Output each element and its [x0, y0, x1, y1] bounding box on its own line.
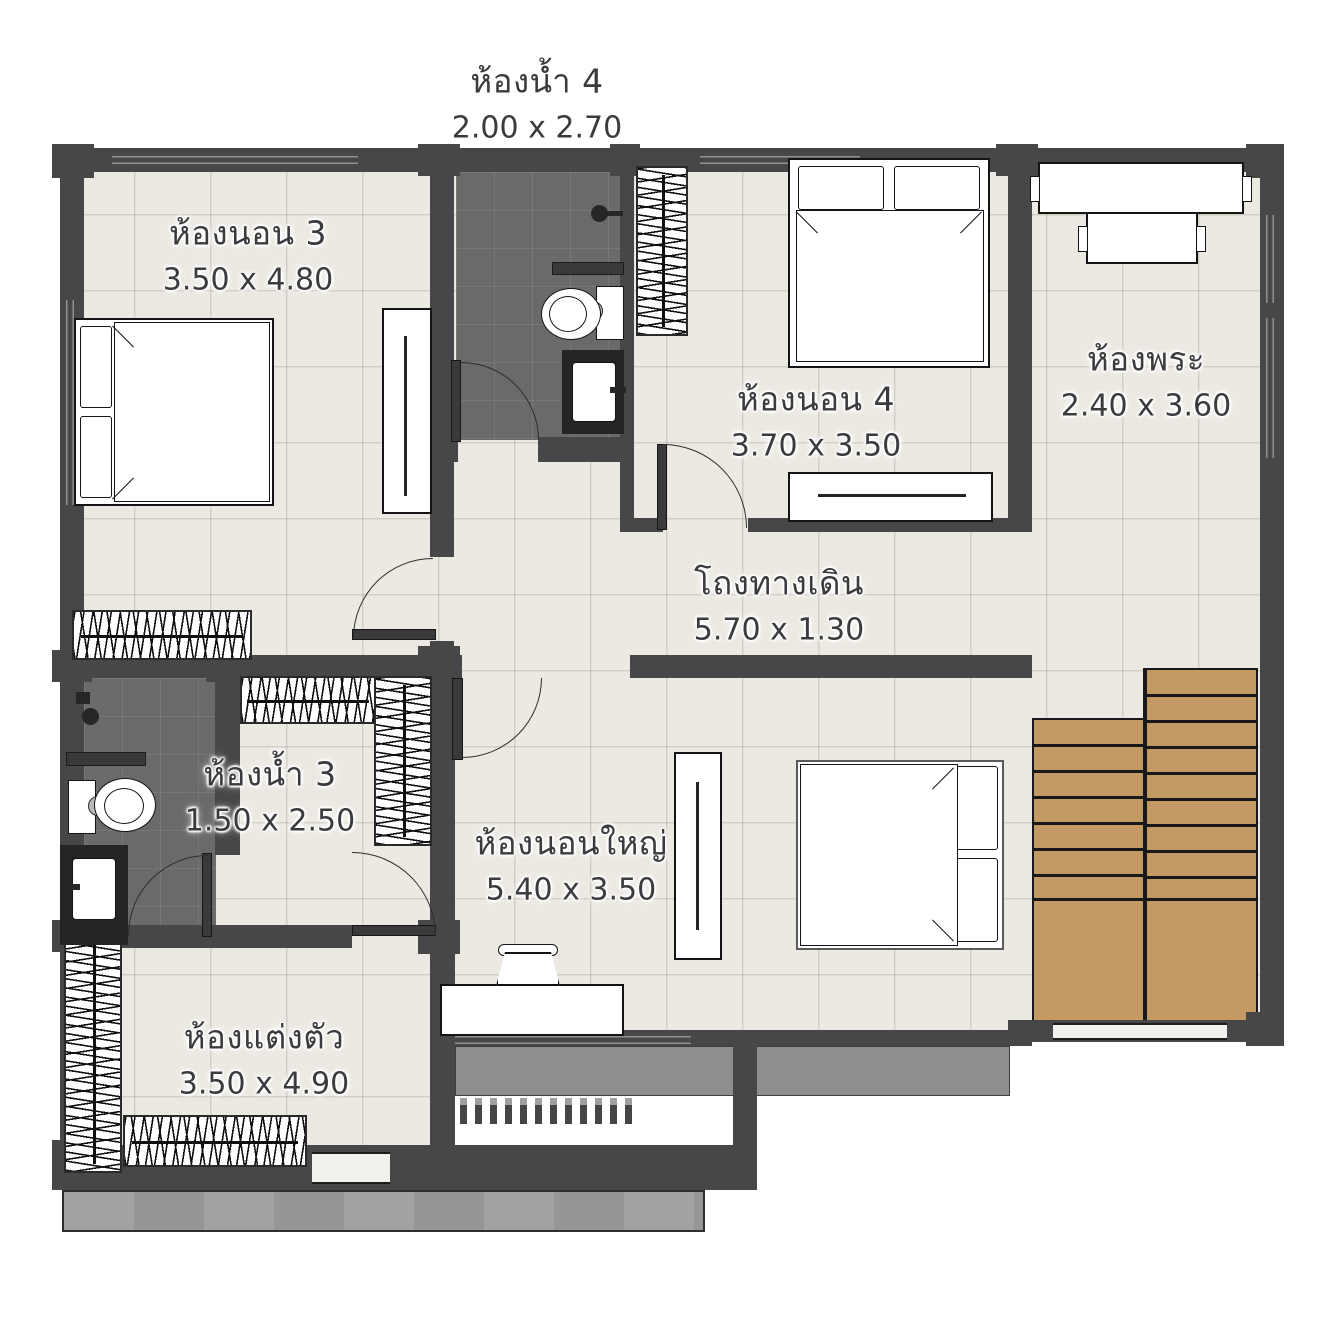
tv-console — [382, 308, 432, 514]
room-label-dressing-room: ห้องแต่งตัว 3.50 x 4.90 — [179, 1011, 349, 1102]
wall-terrace-right — [733, 1046, 757, 1190]
railing-post — [565, 1098, 572, 1124]
room-dims: 3.50 x 4.90 — [179, 1067, 349, 1102]
mattress — [796, 210, 984, 362]
room-name: ห้องพระ — [1061, 333, 1231, 386]
bath-shelf — [552, 262, 624, 275]
window — [112, 152, 358, 168]
window — [312, 1152, 390, 1184]
room-dims: 2.40 x 3.60 — [1061, 389, 1231, 424]
altar-table — [1038, 162, 1244, 214]
stair-step-line — [1032, 874, 1145, 877]
desk — [440, 984, 624, 1036]
stair-step-line — [1145, 694, 1258, 697]
stair-step-line — [1032, 770, 1145, 773]
window — [1053, 1023, 1227, 1040]
room-name: โถงทางเดิน — [694, 557, 864, 610]
wardrobe-closet — [240, 676, 376, 724]
wall-hallway-bottom-right — [630, 655, 1032, 678]
wall-pier — [1246, 144, 1284, 178]
railing-post — [460, 1098, 467, 1124]
pillow — [954, 766, 998, 850]
stair-step-line — [1145, 746, 1258, 749]
wardrobe-closet — [72, 610, 252, 660]
railing-post — [625, 1098, 632, 1124]
wardrobe-closet — [374, 676, 432, 846]
railing-post — [595, 1098, 602, 1124]
altar-table-tab — [1242, 176, 1252, 202]
wall-bathroom4-bottom-right — [538, 437, 634, 462]
room-name: ห้องนอน 4 — [731, 373, 901, 426]
railing-post — [490, 1098, 497, 1124]
altar-table — [1086, 212, 1198, 264]
chair-seat — [496, 952, 560, 986]
room-dims: 5.40 x 3.50 — [474, 873, 667, 908]
altar-table-tab — [1030, 176, 1040, 202]
stair-step-line — [1032, 822, 1145, 825]
railing-post — [505, 1098, 512, 1124]
shower-head-icon — [82, 708, 99, 725]
door-leaf-bathroom4 — [451, 360, 461, 442]
room-label-bedroom-3: ห้องนอน 3 3.50 x 4.80 — [163, 207, 333, 298]
mattress — [114, 322, 270, 502]
room-dims: 1.50 x 2.50 — [185, 804, 355, 839]
stair-flight-left — [1032, 718, 1145, 1022]
stair-divider-line — [1143, 668, 1146, 901]
room-name: ห้องน้ำ 4 — [452, 55, 622, 108]
faucet — [64, 884, 80, 890]
stair-step-line — [1145, 772, 1258, 775]
room-label-bathroom-3: ห้องน้ำ 3 1.50 x 2.50 — [185, 748, 355, 839]
stair-step-line — [1145, 798, 1258, 801]
pillow — [80, 326, 112, 408]
room-label-master-bedroom: ห้องนอนใหญ่ 5.40 x 3.50 — [474, 817, 667, 908]
tv-screen — [404, 336, 407, 496]
faucet — [610, 387, 626, 393]
stair-step-line — [1032, 744, 1145, 747]
room-name: ห้องนอน 3 — [163, 207, 333, 260]
toilet-seat — [104, 788, 144, 824]
tv-console — [788, 472, 993, 522]
room-dims: 2.00 x 2.70 — [452, 111, 622, 146]
railing-post — [610, 1098, 617, 1124]
pillow — [798, 166, 884, 210]
wall-pier — [1246, 1012, 1284, 1046]
wall-nook-bottom — [240, 925, 352, 948]
floor-plan: ห้องน้ำ 4 2.00 x 2.70 ห้องนอน 3 3.50 x 4… — [0, 0, 1334, 1335]
room-label-hallway: โถงทางเดิน 5.70 x 1.30 — [694, 557, 864, 648]
pillow — [80, 416, 112, 498]
room-dims: 3.70 x 3.50 — [731, 429, 901, 464]
railing-post — [550, 1098, 557, 1124]
railing-post — [520, 1098, 527, 1124]
bath-shelf — [66, 752, 146, 766]
room-name: ห้องแต่งตัว — [179, 1011, 349, 1064]
wardrobe-closet — [636, 166, 688, 336]
railing-post — [535, 1098, 542, 1124]
wall-bedroom4-prayer — [1008, 148, 1032, 532]
wall-pier — [418, 144, 460, 176]
stair-step-line — [1032, 796, 1145, 799]
stair-step-line — [1145, 824, 1258, 827]
mattress — [800, 764, 958, 946]
altar-table-tab — [1196, 226, 1206, 252]
railing-post — [475, 1098, 482, 1124]
pillow — [894, 166, 980, 210]
room-label-bedroom-4: ห้องนอน 4 3.70 x 3.50 — [731, 373, 901, 464]
wardrobe-closet — [123, 1115, 307, 1167]
room-name: ห้องน้ำ 3 — [185, 748, 355, 801]
room-name: ห้องนอนใหญ่ — [474, 817, 667, 870]
lower-roof-slab — [62, 1190, 705, 1232]
stair-step-line — [1145, 720, 1258, 723]
shower-arm — [606, 211, 623, 216]
tv-screen — [696, 782, 699, 930]
wardrobe-closet — [64, 933, 122, 1173]
shower-arm — [76, 692, 90, 704]
window — [1262, 215, 1282, 303]
toilet-seat — [549, 296, 587, 332]
stair-step-line — [1032, 848, 1145, 851]
stair-step-line — [1145, 850, 1258, 853]
altar-table-tab — [1078, 226, 1088, 252]
room-dims: 5.70 x 1.30 — [694, 613, 864, 648]
pillow — [954, 858, 998, 942]
plan-title: ห้องน้ำ 4 2.00 x 2.70 — [452, 55, 622, 146]
tv-screen — [818, 494, 966, 497]
wall-pier — [52, 144, 94, 178]
room-dims: 3.50 x 4.80 — [163, 263, 333, 298]
railing-post — [580, 1098, 587, 1124]
stair-step-line — [1145, 876, 1258, 879]
wall-pier — [996, 144, 1038, 176]
window — [1262, 318, 1282, 458]
room-label-prayer-room: ห้องพระ 2.40 x 3.60 — [1061, 333, 1231, 424]
